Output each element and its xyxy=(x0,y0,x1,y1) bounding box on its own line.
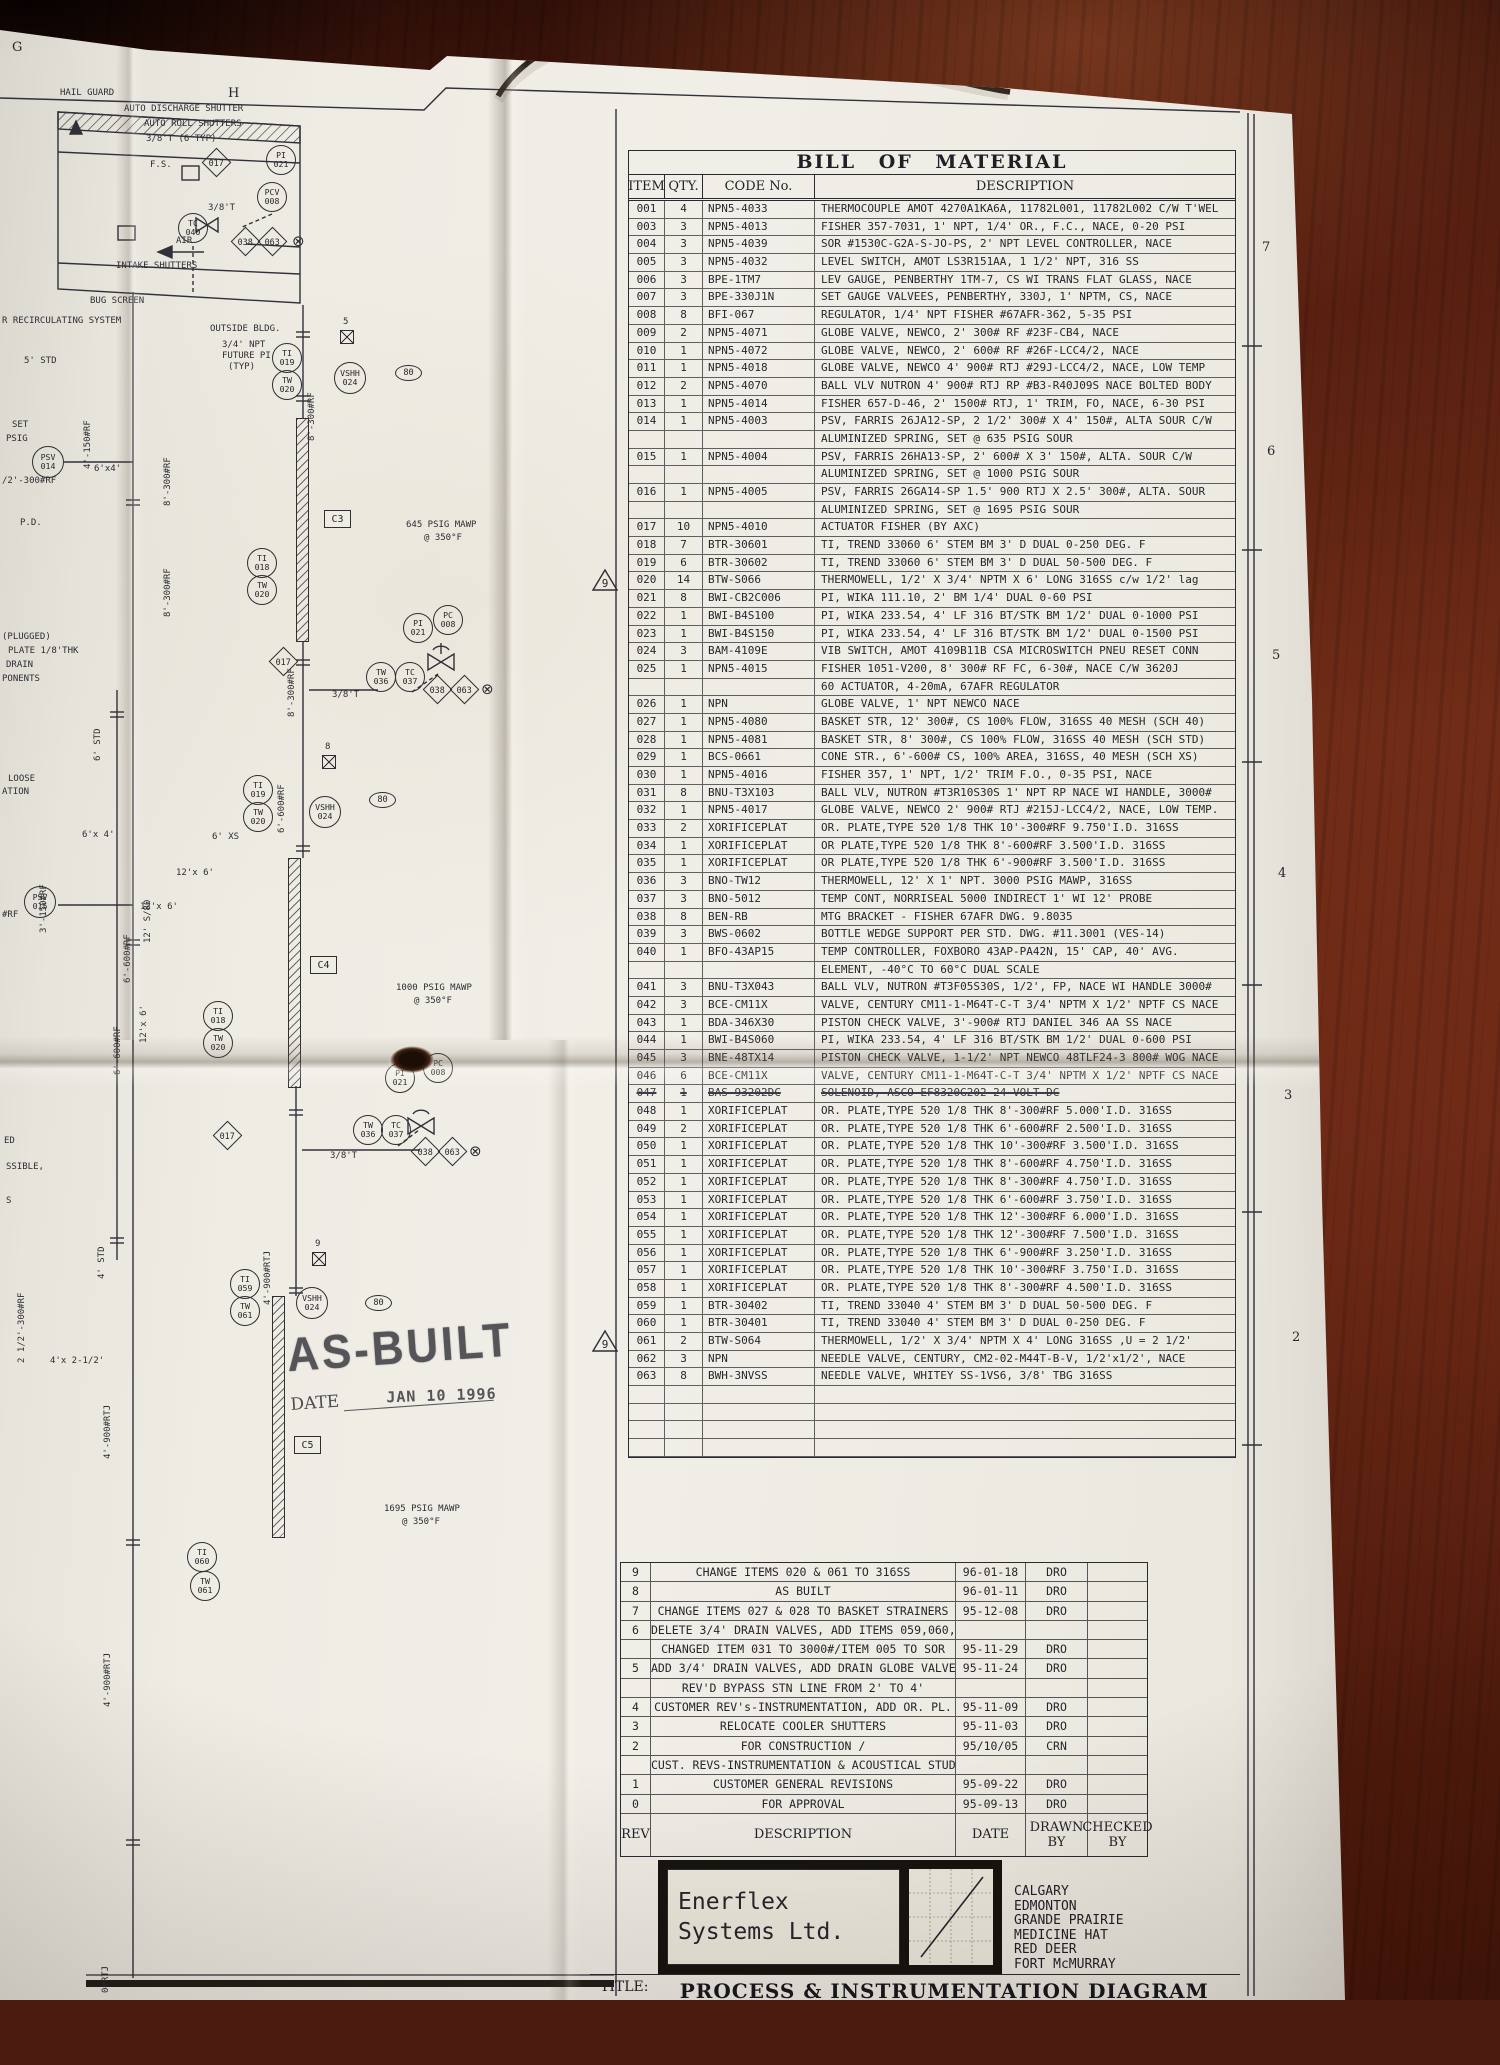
bom-cell-qty: 1 xyxy=(665,343,703,360)
diagram-label: 2 1/2'-300#RF xyxy=(17,1293,28,1363)
bom-cell-qty: 1 xyxy=(665,1015,703,1032)
bom-cell-code: BEN-RB xyxy=(703,909,815,926)
branch-city: FORT ST. JOHN, B.C. xyxy=(1014,2007,1218,2022)
bom-cell-code: BPE-1TM7 xyxy=(703,272,815,289)
bom-cell-item: 059 xyxy=(629,1298,665,1315)
bom-cell-item: 036 xyxy=(629,873,665,890)
bom-cell-qty: 1 xyxy=(665,413,703,430)
bom-cell-item: 042 xyxy=(629,997,665,1014)
bom-row: 0014NPN5-4033THERMOCOUPLE AMOT 4270A1KA6… xyxy=(629,201,1235,219)
bom-row: 0521XORIFICEPLATOR. PLATE,TYPE 520 1/8 T… xyxy=(629,1174,1235,1192)
bom-cell-qty: 1 xyxy=(665,696,703,713)
diagram-label: 3/8'T xyxy=(330,1151,357,1162)
revision-cell-rev: 1 xyxy=(621,1775,651,1793)
bom-cell-qty: 1 xyxy=(665,449,703,466)
bom-cell-code: BWS-0602 xyxy=(703,926,815,943)
bom-header-description: DESCRIPTION xyxy=(815,175,1235,198)
revision-footer-checked-by: CHECKED BY xyxy=(1088,1814,1147,1856)
bom-row: 0318BNU-T3X103BALL VLV, NUTRON #T3R10S30… xyxy=(629,785,1235,803)
bom-cell-item: 001 xyxy=(629,201,665,218)
bom-cell-item: 063 xyxy=(629,1368,665,1385)
bom-row: 0581XORIFICEPLATOR. PLATE,TYPE 520 1/8 T… xyxy=(629,1280,1235,1298)
revision-cell-date: 95-11-03 xyxy=(956,1717,1026,1735)
bom-cell-code: XORIFICEPLAT xyxy=(703,1174,815,1191)
signal-oval-80: 80 xyxy=(365,1295,392,1311)
bom-row: 0043NPN5-4039SOR #1530C-G2A-S-JO-PS, 2' … xyxy=(629,236,1235,254)
instrument-bubble-pi-021: PI 021 xyxy=(266,145,296,175)
diagram-label: /2'-300#RF xyxy=(2,476,56,487)
bom-cell-code: BAS-93202DC xyxy=(703,1085,815,1102)
revision-cell-rev: 0 xyxy=(621,1795,651,1813)
diagram-label: 8'-300#RF xyxy=(163,568,174,617)
bom-cell-code xyxy=(703,1386,815,1403)
bom-cell-description: THERMOWELL, 1/2' X 3/4' NPTM X 6' LONG 3… xyxy=(815,572,1235,589)
instrument-bubble-tw-020: TW 020 xyxy=(272,370,302,400)
bom-cell-item: 022 xyxy=(629,608,665,625)
vessel-tag-c4: C4 xyxy=(310,956,337,974)
bom-row: 0571XORIFICEPLATOR. PLATE,TYPE 520 1/8 T… xyxy=(629,1262,1235,1280)
needle-valve-icon: ⊗ xyxy=(469,1144,482,1159)
bom-cell-qty: 1 xyxy=(665,1315,703,1332)
bom-cell-description: BASKET STR, 12' 300#, CS 100% FLOW, 316S… xyxy=(815,714,1235,731)
bom-cell-description: OR PLATE,TYPE 520 1/8 THK 6'-900#RF 3.50… xyxy=(815,855,1235,872)
revision-cell-rev: 9 xyxy=(621,1563,651,1581)
bom-cell-qty xyxy=(665,679,703,696)
bom-cell-description: OR. PLATE,TYPE 520 1/8 THK 8'-300#RF 4.7… xyxy=(815,1174,1235,1191)
bom-cell-code: NPN5-4003 xyxy=(703,413,815,430)
bom-cell-description: OR. PLATE,TYPE 520 1/8 THK 8'-300#RF 4.5… xyxy=(815,1280,1235,1297)
revision-row: 7CHANGE ITEMS 027 & 028 TO BASKET STRAIN… xyxy=(621,1602,1147,1621)
bom-row: 0638BWH-3NVSSNEEDLE VALVE, WHITEY SS-1VS… xyxy=(629,1368,1235,1386)
diagram-label: 6'-600#RF xyxy=(113,1026,124,1075)
diagram-label: 8'-300#RF xyxy=(307,392,318,441)
bom-cell-qty: 1 xyxy=(665,749,703,766)
bom-cell-description: SET GAUGE VALVEES, PENBERTHY, 330J, 1' N… xyxy=(815,289,1235,306)
branch-cities-primary: CALGARYEDMONTONGRANDE PRAIRIEMEDICINE HA… xyxy=(1014,1885,1218,1972)
revision-row: REV'D BYPASS STN LINE FROM 2' TO 4' xyxy=(621,1679,1147,1698)
bom-cell-code: NPN5-4018 xyxy=(703,360,815,377)
bom-cell-description: CONE STR., 6'-600# CS, 100% AREA, 316SS,… xyxy=(815,749,1235,766)
bom-cell-code: BWI-CB2C006 xyxy=(703,590,815,607)
bom-cell-qty: 3 xyxy=(665,926,703,943)
stamp-date-label: DATE xyxy=(290,1392,340,1415)
relief-box-icon xyxy=(312,1252,326,1266)
diagram-label: #RF xyxy=(2,910,18,921)
instrument-bubble-tw-020: TW 020 xyxy=(203,1028,233,1058)
bom-cell-description: FISHER 1051-V200, 8' 300# RF FC, 6-30#, … xyxy=(815,661,1235,678)
bom-cell-item xyxy=(629,502,665,519)
bom-cell-description: OR. PLATE,TYPE 520 1/8 THK 8'-600#RF 4.7… xyxy=(815,1156,1235,1173)
bom-cell-description: PI, WIKA 233.54, 4' LF 316 BT/STK BM 1/2… xyxy=(815,626,1235,643)
bom-cell-qty xyxy=(665,466,703,483)
bom-cell-qty: 1 xyxy=(665,1192,703,1209)
bom-row: 0388BEN-RBMTG BRACKET - FISHER 67AFR DWG… xyxy=(629,909,1235,927)
diagram-label: 6'x4' xyxy=(94,464,121,475)
instrument-bubble-pcv-008: PCV 008 xyxy=(257,182,287,212)
bom-cell-description xyxy=(815,1439,1235,1456)
bom-cell-code: BDA-346X30 xyxy=(703,1015,815,1032)
instrument-bubble-tc-037: TC 037 xyxy=(381,1115,411,1145)
branch-city: GRANDE PRAIRIE xyxy=(1014,1914,1218,1929)
revision-cell-date: 95-11-29 xyxy=(956,1640,1026,1658)
bom-cell-code: BWH-3NVSS xyxy=(703,1368,815,1385)
diagram-label: 6' XS xyxy=(212,832,239,843)
bom-cell-code: BCE-CM11X xyxy=(703,997,815,1014)
bom-cell-qty: 3 xyxy=(665,979,703,996)
bom-cell-item: 004 xyxy=(629,236,665,253)
bom-cell-item: 037 xyxy=(629,891,665,908)
bom-cell-item: 057 xyxy=(629,1262,665,1279)
bom-cell-item: 025 xyxy=(629,661,665,678)
bom-cell-description: OR. PLATE,TYPE 520 1/8 THK 6'-600#RF 2.5… xyxy=(815,1121,1235,1138)
bom-row: 60 ACTUATOR, 4-20mA, 67AFR REGULATOR xyxy=(629,679,1235,697)
bom-cell-code: NPN5-4010 xyxy=(703,519,815,536)
bom-cell-item: 015 xyxy=(629,449,665,466)
bom-cell-description: ALUMINIZED SPRING, SET @ 1695 PSIG SOUR xyxy=(815,502,1235,519)
bom-cell-qty: 3 xyxy=(665,997,703,1014)
bom-row xyxy=(629,1386,1235,1404)
bom-row: 0161NPN5-4005PSV, FARRIS 26GA14-SP 1.5' … xyxy=(629,484,1235,502)
bom-cell-code: BNE-48TX14 xyxy=(703,1050,815,1067)
bom-row: 0351XORIFICEPLATOR PLATE,TYPE 520 1/8 TH… xyxy=(629,855,1235,873)
revision-cell-checked-by xyxy=(1088,1737,1147,1755)
bom-cell-item: 053 xyxy=(629,1192,665,1209)
bom-cell-code: NPN5-4081 xyxy=(703,732,815,749)
bom-row: 0423BCE-CM11XVALVE, CENTURY CM11-1-M64T-… xyxy=(629,997,1235,1015)
diagram-label: P.D. xyxy=(20,518,42,529)
revision-cell-drawn-by: DRO xyxy=(1026,1640,1088,1658)
bom-cell-description: THERMOWELL, 1/2' X 3/4' NPTM X 4' LONG 3… xyxy=(815,1333,1235,1350)
revision-footer-description: DESCRIPTION xyxy=(651,1814,956,1856)
bom-cell-item: 023 xyxy=(629,626,665,643)
bom-cell-code: XORIFICEPLAT xyxy=(703,1121,815,1138)
bom-row xyxy=(629,1421,1235,1439)
bom-row: ALUMINIZED SPRING, SET @ 1695 PSIG SOUR xyxy=(629,502,1235,520)
instrument-bubble-ti-060: TI 060 xyxy=(187,1542,217,1572)
bom-cell-description: GLOBE VALVE, NEWCO, 2' 300# RF #23F-CB4,… xyxy=(815,325,1235,342)
bom-title: BILL OF MATERIAL xyxy=(629,151,1235,175)
zone-number: 4 xyxy=(1278,866,1286,881)
bom-cell-description: NEEDLE VALVE, WHITEY SS-1VS6, 3/8' TBG 3… xyxy=(815,1368,1235,1385)
bom-row: 0301NPN5-4016FISHER 357, 1' NPT, 1/2' TR… xyxy=(629,767,1235,785)
bom-row: 0363BNO-TW12THERMOWELL, 12' X 1' NPT. 30… xyxy=(629,873,1235,891)
diagram-label: @ 350°F xyxy=(414,996,452,1007)
diagram-label: 6'-600#RF xyxy=(123,934,134,983)
bom-cell-description: GLOBE VALVE, 1' NPT NEWCO NACE xyxy=(815,696,1235,713)
bom-cell-qty: 3 xyxy=(665,1050,703,1067)
bom-cell-description: SOLENOID, ASCO EF8320G202 24 VOLT DC xyxy=(815,1085,1235,1102)
bom-cell-qty: 1 xyxy=(665,1138,703,1155)
sheet-title: PROCESS & INSTRUMENTATION DIAGRAM xyxy=(648,1979,1240,2003)
revision-cell-rev: 6 xyxy=(621,1621,651,1639)
bom-row: 0281NPN5-4081BASKET STR, 8' 300#, CS 100… xyxy=(629,732,1235,750)
vessel-tag-c3: C3 xyxy=(324,510,351,528)
vessel-column-c5 xyxy=(272,1296,285,1538)
diagram-label: 4' STD xyxy=(97,1246,108,1279)
bom-cell-description: OR. PLATE,TYPE 520 1/8 THK 10'-300#RF 3.… xyxy=(815,1138,1235,1155)
revision-cell-checked-by xyxy=(1088,1756,1147,1774)
bom-cell-description: PISTON CHECK VALVE, 3'-900# RTJ DANIEL 3… xyxy=(815,1015,1235,1032)
relief-box-number: 5 xyxy=(343,317,348,327)
revision-cell-description: REV'D BYPASS STN LINE FROM 2' TO 4' xyxy=(651,1679,956,1697)
bom-cell-code: BFI-067 xyxy=(703,307,815,324)
zone-letter: H xyxy=(228,86,239,101)
vessel-column-c4 xyxy=(288,858,301,1088)
bom-cell-description: BASKET STR, 8' 300#, CS 100% FLOW, 316SS… xyxy=(815,732,1235,749)
drawing-sheet: C3C4C5PI 021PCV 008TC 040TI 019TW 020VSH… xyxy=(0,0,1500,2000)
revision-cell-checked-by xyxy=(1088,1640,1147,1658)
bom-cell-item: 017 xyxy=(629,519,665,536)
bom-row: 02014BTW-S066THERMOWELL, 1/2' X 3/4' NPT… xyxy=(629,572,1235,590)
diagram-label: INTAKE SHUTTERS xyxy=(116,261,197,272)
bom-row: 0332XORIFICEPLATOR. PLATE,TYPE 520 1/8 T… xyxy=(629,820,1235,838)
bom-row: 0111NPN5-4018GLOBE VALVE, NEWCO 4' 900# … xyxy=(629,360,1235,378)
revision-cell-description: ADD 3/4' DRAIN VALVES, ADD DRAIN GLOBE V… xyxy=(651,1659,956,1677)
bom-cell-description: ACTUATOR FISHER (BY AXC) xyxy=(815,519,1235,536)
bom-cell-code: XORIFICEPLAT xyxy=(703,855,815,872)
revision-cell-drawn-by: DRO xyxy=(1026,1717,1088,1735)
bom-cell-description: FISHER 657-D-46, 2' 1500# RTJ, 1' TRIM, … xyxy=(815,396,1235,413)
bom-cell-code: BTR-30602 xyxy=(703,555,815,572)
revision-cell-checked-by xyxy=(1088,1659,1147,1677)
bom-cell-description: LEV GAUGE, PENBERTHY 1TM-7, CS WI TRANS … xyxy=(815,272,1235,289)
bom-cell-qty: 1 xyxy=(665,944,703,961)
bom-cell-item: 009 xyxy=(629,325,665,342)
bom-row: 0218BWI-CB2C006PI, WIKA 111.10, 2' BM 1/… xyxy=(629,590,1235,608)
bom-cell-code: NPN5-4080 xyxy=(703,714,815,731)
diagram-label: 6' STD xyxy=(93,728,104,761)
bom-cell-description: VIB SWITCH, AMOT 4109B11B CSA MICROSWITC… xyxy=(815,643,1235,660)
diagram-label: 4'-900#RTJ xyxy=(263,1251,274,1305)
signal-oval-80: 80 xyxy=(395,365,422,381)
bom-cell-qty: 3 xyxy=(665,236,703,253)
diagram-label: ED xyxy=(4,1136,15,1147)
needle-valve-icon: ⊗ xyxy=(481,682,494,697)
diagram-label: 4'x 2-1/2' xyxy=(50,1356,104,1367)
bom-cell-item: 018 xyxy=(629,537,665,554)
revision-row: 9CHANGE ITEMS 020 & 061 TO 316SS96-01-18… xyxy=(621,1563,1147,1582)
bom-cell-item: 045 xyxy=(629,1050,665,1067)
diagram-label: 3/8'T xyxy=(332,690,359,701)
bom-cell-description: BALL VLV, NUTRON #T3R10S30S 1' NPT RP NA… xyxy=(815,785,1235,802)
bom-row: 0531XORIFICEPLATOR. PLATE,TYPE 520 1/8 T… xyxy=(629,1192,1235,1210)
bom-cell-description: PI, WIKA 233.54, 4' LF 316 BT/STK BM 1/2… xyxy=(815,608,1235,625)
bom-cell-description: REGULATOR, 1/4' NPT FISHER #67AFR-362, 5… xyxy=(815,307,1235,324)
revision-cell-drawn-by xyxy=(1026,1756,1088,1774)
bom-row: 0413BNU-T3X043BALL VLV, NUTRON #T3F05S30… xyxy=(629,979,1235,997)
bom-cell-code: NPN5-4013 xyxy=(703,219,815,236)
diagram-label: 3/8'T xyxy=(208,203,235,214)
revision-cell-date xyxy=(956,1621,1026,1639)
bom-cell-code: BTW-S066 xyxy=(703,572,815,589)
diagram-label: AIR xyxy=(176,236,192,247)
title-strip: TITLE: PROCESS & INSTRUMENTATION DIAGRAM xyxy=(590,1974,1240,2003)
bom-cell-code: BAM-4109E xyxy=(703,643,815,660)
bom-cell-item: 003 xyxy=(629,219,665,236)
diagram-label: 12'x 6' xyxy=(176,868,214,879)
bom-cell-code: NPN5-4014 xyxy=(703,396,815,413)
bom-cell-qty: 7 xyxy=(665,537,703,554)
revision-triangle: 9 xyxy=(592,568,618,592)
bom-cell-description: THERMOWELL, 12' X 1' NPT. 3000 PSIG MAWP… xyxy=(815,873,1235,890)
diagram-label: 3/8'T (6 TYP) xyxy=(146,134,216,145)
revision-body: 9CHANGE ITEMS 020 & 061 TO 316SS96-01-18… xyxy=(621,1563,1147,1814)
vessel-tag-c5: C5 xyxy=(294,1436,321,1454)
bom-cell-code: BCE-CM11X xyxy=(703,1068,815,1085)
bom-cell-item: 044 xyxy=(629,1032,665,1049)
bom-cell-item: 013 xyxy=(629,396,665,413)
bom-row: 0591BTR-30402TI, TREND 33040 4' STEM BM … xyxy=(629,1298,1235,1316)
revision-cell-date: 95-11-09 xyxy=(956,1698,1026,1716)
bom-cell-item: 027 xyxy=(629,714,665,731)
revision-table: 9CHANGE ITEMS 020 & 061 TO 316SS96-01-18… xyxy=(620,1562,1148,1857)
bom-cell-qty: 3 xyxy=(665,219,703,236)
instrument-bubble-ti-018: TI 018 xyxy=(247,548,277,578)
bom-row: 0033NPN5-4013FISHER 357-7031, 1' NPT, 1/… xyxy=(629,219,1235,237)
bom-cell-qty: 4 xyxy=(665,201,703,218)
revision-cell-drawn-by xyxy=(1026,1621,1088,1639)
zone-number: 5 xyxy=(1272,648,1280,663)
revision-cell-date xyxy=(956,1679,1026,1697)
bom-cell-qty: 8 xyxy=(665,909,703,926)
instrument-bubble-ti-019: TI 019 xyxy=(243,775,273,805)
bom-cell-description: TI, TREND 33040 4' STEM BM 3' D DUAL 50-… xyxy=(815,1298,1235,1315)
zone-number: 3 xyxy=(1284,1088,1292,1103)
bom-cell-qty: 1 xyxy=(665,608,703,625)
diagram-label: 8'-300#RF xyxy=(287,668,298,717)
bom-row: 0291BCS-0661CONE STR., 6'-600# CS, 100% … xyxy=(629,749,1235,767)
bom-cell-item xyxy=(629,1386,665,1403)
bom-cell-item: 011 xyxy=(629,360,665,377)
bom-cell-code: NPN5-4005 xyxy=(703,484,815,501)
bom-cell-code: NPN5-4033 xyxy=(703,201,815,218)
revision-cell-checked-by xyxy=(1088,1775,1147,1793)
zone-letter: G xyxy=(12,40,22,55)
bom-header-code: CODE No. xyxy=(703,175,815,198)
bom-cell-description: 60 ACTUATOR, 4-20mA, 67AFR REGULATOR xyxy=(815,679,1235,696)
revision-cell-date: 95-12-08 xyxy=(956,1602,1026,1620)
revision-cell-description: CHANGE ITEMS 027 & 028 TO BASKET STRAINE… xyxy=(651,1602,956,1620)
bom-cell-qty: 1 xyxy=(665,396,703,413)
bom-cell-item: 054 xyxy=(629,1209,665,1226)
bom-row: 0073BPE-330J1NSET GAUGE VALVEES, PENBERT… xyxy=(629,289,1235,307)
diagram-label: F.S. xyxy=(150,160,172,171)
stamp-date-value: JAN 10 1996 xyxy=(386,1385,497,1407)
vessel-column-c3 xyxy=(296,418,309,642)
revision-cell-rev xyxy=(621,1640,651,1658)
bom-cell-code: NPN5-4032 xyxy=(703,254,815,271)
bom-row: 0131NPN5-4014FISHER 657-D-46, 2' 1500# R… xyxy=(629,396,1235,414)
bom-cell-description: PISTON CHECK VALVE, 1-1/2' NPT NEWCO 48T… xyxy=(815,1050,1235,1067)
bom-cell-description: GLOBE VALVE, NEWCO 2' 900# RTJ #215J-LCC… xyxy=(815,802,1235,819)
revision-cell-drawn-by xyxy=(1026,1679,1088,1697)
diagram-label: PONENTS xyxy=(2,674,40,685)
bom-cell-description xyxy=(815,1421,1235,1438)
bom-cell-code: NPN5-4004 xyxy=(703,449,815,466)
diagram-label: 645 PSIG MAWP xyxy=(406,520,476,531)
bom-cell-qty: 1 xyxy=(665,1209,703,1226)
bom-cell-item: 039 xyxy=(629,926,665,943)
bom-cell-code: BNU-T3X043 xyxy=(703,979,815,996)
revision-cell-rev: 4 xyxy=(621,1698,651,1716)
bom-row: 0551XORIFICEPLATOR. PLATE,TYPE 520 1/8 T… xyxy=(629,1227,1235,1245)
zone-number: 2 xyxy=(1292,1330,1300,1345)
bom-cell-qty xyxy=(665,1386,703,1403)
zone-number: 7 xyxy=(1262,240,1270,255)
instrument-bubble-tc-037: TC 037 xyxy=(395,662,425,692)
revision-row: 6DELETE 3/4' DRAIN VALVES, ADD ITEMS 059… xyxy=(621,1621,1147,1640)
bom-cell-code: NPN5-4015 xyxy=(703,661,815,678)
logo-mark xyxy=(909,1869,993,1965)
instrument-bubble-tw-036: TW 036 xyxy=(366,662,396,692)
bom-cell-qty: 1 xyxy=(665,1245,703,1262)
revision-cell-description: DELETE 3/4' DRAIN VALVES, ADD ITEMS 059,… xyxy=(651,1621,956,1639)
bom-cell-qty xyxy=(665,431,703,448)
bom-cell-description: OR. PLATE,TYPE 520 1/8 THK 10'-300#RF 9.… xyxy=(815,820,1235,837)
revision-cell-date: 95-09-13 xyxy=(956,1795,1026,1813)
revision-cell-rev: 8 xyxy=(621,1582,651,1600)
revision-row: 5ADD 3/4' DRAIN VALVES, ADD DRAIN GLOBE … xyxy=(621,1659,1147,1678)
bom-row: 0088BFI-067REGULATOR, 1/4' NPT FISHER #6… xyxy=(629,307,1235,325)
bom-row: 0261NPNGLOBE VALVE, 1' NPT NEWCO NACE xyxy=(629,696,1235,714)
bom-cell-code xyxy=(703,962,815,979)
revision-row: 2FOR CONSTRUCTION /95/10/05CRN xyxy=(621,1737,1147,1756)
diagram-label: SET xyxy=(12,420,28,431)
bom-cell-description: OR. PLATE,TYPE 520 1/8 THK 12'-300#RF 7.… xyxy=(815,1227,1235,1244)
bom-cell-item xyxy=(629,679,665,696)
bom-cell-item: 060 xyxy=(629,1315,665,1332)
bom-cell-description xyxy=(815,1386,1235,1403)
revision-cell-checked-by xyxy=(1088,1621,1147,1639)
bom-cell-qty: 1 xyxy=(665,714,703,731)
revision-cell-drawn-by: DRO xyxy=(1026,1582,1088,1600)
revision-cell-drawn-by: DRO xyxy=(1026,1659,1088,1677)
bom-cell-description: TI, TREND 33040 4' STEM BM 3' D DUAL 0-2… xyxy=(815,1315,1235,1332)
bom-row xyxy=(629,1404,1235,1422)
diagram-label: 1695 PSIG MAWP xyxy=(384,1504,460,1515)
bom-cell-item: 043 xyxy=(629,1015,665,1032)
revision-cell-rev: 7 xyxy=(621,1602,651,1620)
revision-cell-description: FOR CONSTRUCTION / xyxy=(651,1737,956,1755)
revision-cell-checked-by xyxy=(1088,1717,1147,1735)
revision-row: CUST. REVS-INSTRUMENTATION & ACOUSTICAL … xyxy=(621,1756,1147,1775)
instrument-bubble-vshh-024: VSHH 024 xyxy=(309,796,341,828)
bom-cell-qty: 2 xyxy=(665,378,703,395)
bom-header-qty: QTY. xyxy=(665,175,703,198)
bom-row: 0492XORIFICEPLATOR. PLATE,TYPE 520 1/8 T… xyxy=(629,1121,1235,1139)
bom-cell-description: BALL VLV NUTRON 4' 900# RTJ RP #B3-R40J0… xyxy=(815,378,1235,395)
bom-cell-description: PSV, FARRIS 26HA13-SP, 2' 600# X 3' 150#… xyxy=(815,449,1235,466)
bom-cell-item: 006 xyxy=(629,272,665,289)
bom-cell-description: OR. PLATE,TYPE 520 1/8 THK 6'-900#RF 3.2… xyxy=(815,1245,1235,1262)
bom-cell-description: OR. PLATE,TYPE 520 1/8 THK 12'-300#RF 6.… xyxy=(815,1209,1235,1226)
bom-cell-code: BTR-30601 xyxy=(703,537,815,554)
bom-cell-code: NPN5-4072 xyxy=(703,343,815,360)
bom-cell-qty: 3 xyxy=(665,873,703,890)
svg-text:9: 9 xyxy=(602,577,609,590)
bom-cell-item: 019 xyxy=(629,555,665,572)
bom-cell-item xyxy=(629,1421,665,1438)
bom-row: 0601BTR-30401TI, TREND 33040 4' STEM BM … xyxy=(629,1315,1235,1333)
bom-cell-item: 005 xyxy=(629,254,665,271)
instrument-bubble-pc-008: PC 008 xyxy=(433,605,463,635)
bom-row: 0612BTW-S064THERMOWELL, 1/2' X 3/4' NPTM… xyxy=(629,1333,1235,1351)
branch-city: MEDICINE HAT xyxy=(1014,1929,1218,1944)
bom-row: 0151NPN5-4004PSV, FARRIS 26HA13-SP, 2' 6… xyxy=(629,449,1235,467)
bom-cell-code: BWI-B4S060 xyxy=(703,1032,815,1049)
diagram-label: 12' S/80 xyxy=(143,900,154,943)
revision-cell-checked-by xyxy=(1088,1795,1147,1813)
